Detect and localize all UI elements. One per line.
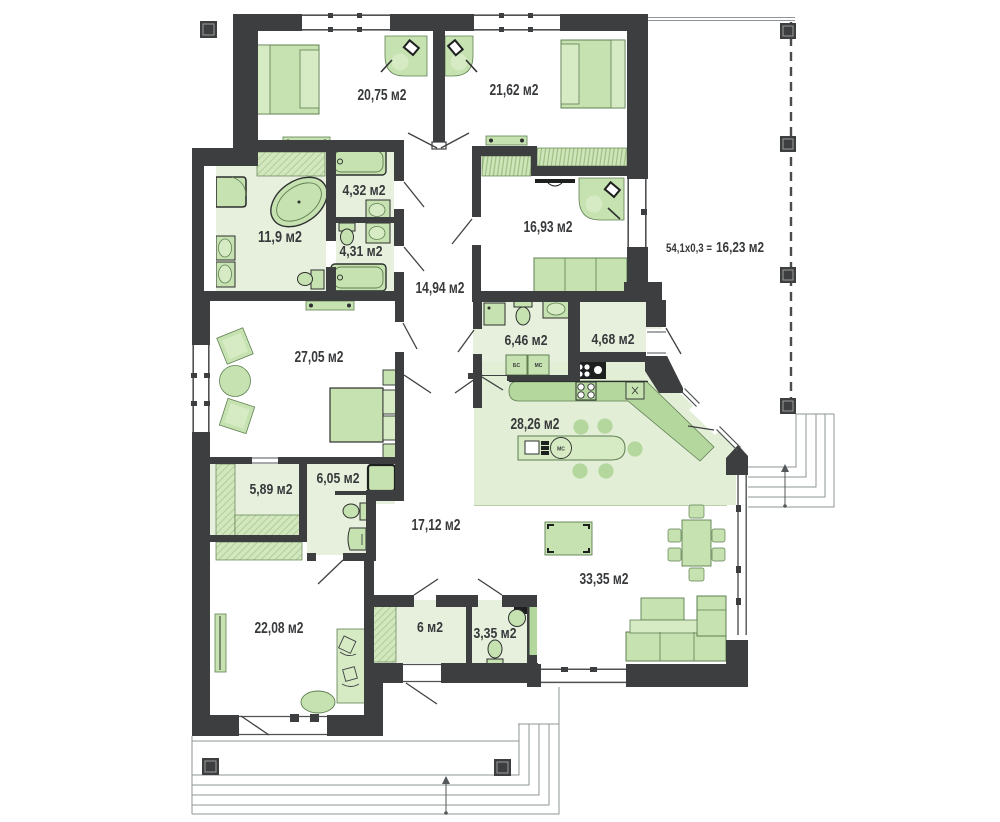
svg-text:5,89 м2: 5,89 м2 xyxy=(250,482,293,498)
svg-text:20,75 м2: 20,75 м2 xyxy=(358,87,407,104)
svg-text:МС: МС xyxy=(557,447,565,453)
svg-text:МС: МС xyxy=(535,363,543,369)
svg-text:28,26 м2: 28,26 м2 xyxy=(511,416,560,433)
svg-text:4,68 м2: 4,68 м2 xyxy=(592,332,635,348)
svg-text:21,62 м2: 21,62 м2 xyxy=(490,82,539,99)
svg-text:6,46 м2: 6,46 м2 xyxy=(505,333,548,349)
svg-text:27,05 м2: 27,05 м2 xyxy=(295,349,344,366)
svg-text:17,12 м2: 17,12 м2 xyxy=(412,517,461,534)
svg-text:4,31 м2: 4,31 м2 xyxy=(340,244,383,260)
svg-text:22,08 м2: 22,08 м2 xyxy=(255,620,304,637)
svg-text:4,32 м2: 4,32 м2 xyxy=(343,183,386,199)
svg-text:14,94 м2: 14,94 м2 xyxy=(416,280,465,297)
svg-text:3,35 м2: 3,35 м2 xyxy=(474,626,517,642)
svg-text:11,9 м2: 11,9 м2 xyxy=(258,229,302,246)
svg-text:6 м2: 6 м2 xyxy=(417,620,443,636)
svg-text:16,93 м2: 16,93 м2 xyxy=(524,219,573,236)
svg-text:БС: БС xyxy=(513,363,521,369)
svg-text:54,1x0,3 =: 54,1x0,3 = xyxy=(666,241,712,255)
svg-text:33,35 м2: 33,35 м2 xyxy=(580,571,629,588)
svg-text:6,05 м2: 6,05 м2 xyxy=(317,471,360,487)
svg-text:16,23 м2: 16,23 м2 xyxy=(716,239,764,256)
